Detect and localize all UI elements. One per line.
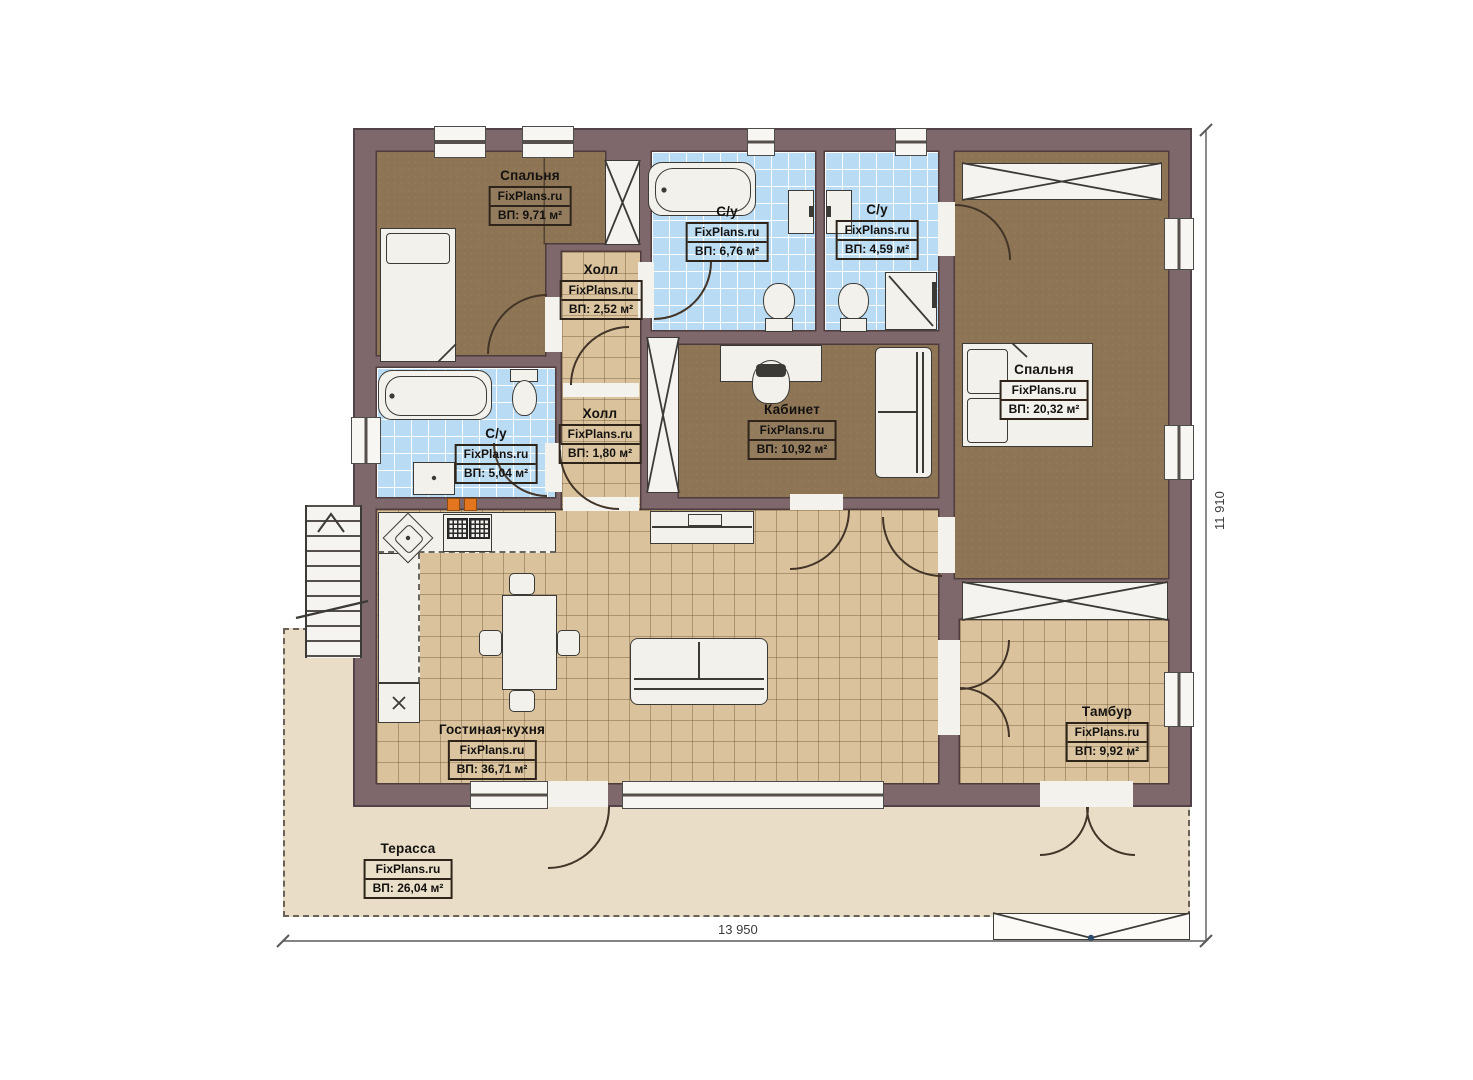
room-area: ВП: 20,32 м² xyxy=(1002,399,1087,418)
tv-console-line xyxy=(652,526,752,528)
floor-plan-canvas: Спальня FixPlans.ru ВП: 9,71 м² Холл Fix… xyxy=(0,0,1473,1080)
bathtub-inner xyxy=(385,376,487,416)
room-label-bathroom-3: С/у FixPlans.ru ВП: 5,04 м² xyxy=(455,426,538,484)
door-opening-bathroom-2 xyxy=(938,202,955,256)
room-area: ВП: 9,92 м² xyxy=(1068,741,1147,760)
toilet xyxy=(763,283,795,320)
sofa-back-line xyxy=(922,352,924,473)
brand-label: FixPlans.ru xyxy=(491,188,570,205)
porch-steps xyxy=(993,913,1190,940)
pillow xyxy=(386,233,450,264)
room-name: С/у xyxy=(686,204,769,219)
sofa-cushion-line xyxy=(878,411,916,413)
office-chair-back xyxy=(756,364,786,377)
room-area: ВП: 36,71 м² xyxy=(450,759,535,778)
window xyxy=(522,126,574,158)
wardrobe xyxy=(647,337,679,493)
stove-burner xyxy=(447,518,468,539)
room-area: ВП: 5,04 м² xyxy=(457,463,536,482)
chair xyxy=(509,573,535,595)
sofa-back-line xyxy=(916,352,918,473)
brand-label: FixPlans.ru xyxy=(561,426,640,443)
door-opening-vestibule xyxy=(938,640,960,735)
exterior-stairs xyxy=(305,505,362,658)
chair xyxy=(557,630,580,656)
window xyxy=(1164,425,1194,480)
stove-burner xyxy=(469,518,490,539)
shower-fixture xyxy=(932,282,937,308)
brand-label: FixPlans.ru xyxy=(457,446,536,463)
room-name: С/у xyxy=(455,426,538,441)
kitchen-cabinet xyxy=(378,683,420,723)
brand-label: FixPlans.ru xyxy=(688,224,767,241)
window xyxy=(434,126,486,158)
toilet-tank xyxy=(840,318,867,332)
brand-label: FixPlans.ru xyxy=(450,742,535,759)
door-opening-hall-upper xyxy=(563,383,639,397)
room-area: ВП: 26,04 м² xyxy=(366,878,451,897)
window xyxy=(622,781,884,809)
room-area: ВП: 9,71 м² xyxy=(491,205,570,224)
room-label-bedroom-2: Спальня FixPlans.ru ВП: 20,32 м² xyxy=(1000,362,1089,420)
wall-marker xyxy=(464,498,477,511)
room-label-living-kitchen: Гостиная-кухня FixPlans.ru ВП: 36,71 м² xyxy=(439,722,545,780)
shower xyxy=(885,272,937,330)
brand-label: FixPlans.ru xyxy=(366,861,451,878)
wardrobe xyxy=(605,160,640,245)
window xyxy=(351,417,381,464)
dimension-width: 13 950 xyxy=(718,922,758,937)
room-name: Терасса xyxy=(364,841,453,856)
room-area: ВП: 4,59 м² xyxy=(838,239,917,258)
dining-table xyxy=(502,595,557,690)
room-label-bedroom-1: Спальня FixPlans.ru ВП: 9,71 м² xyxy=(489,168,572,226)
wardrobe xyxy=(962,582,1168,620)
brand-label: FixPlans.ru xyxy=(838,222,917,239)
door-opening-terrace xyxy=(548,781,608,807)
chair xyxy=(479,630,502,656)
wardrobe xyxy=(962,163,1162,200)
window xyxy=(1164,672,1194,727)
kitchen-counter-left xyxy=(378,553,420,683)
brand-label: FixPlans.ru xyxy=(562,282,641,299)
room-area: ВП: 6,76 м² xyxy=(688,241,767,260)
room-label-terrace: Терасса FixPlans.ru ВП: 26,04 м² xyxy=(364,841,453,899)
room-name: Тамбур xyxy=(1066,704,1149,719)
room-name: С/у xyxy=(836,202,919,217)
room-name: Холл xyxy=(560,262,643,277)
brand-label: FixPlans.ru xyxy=(1068,724,1147,741)
washing-machine xyxy=(413,462,455,495)
window xyxy=(470,781,548,809)
brand-label: FixPlans.ru xyxy=(1002,382,1087,399)
room-label-hall-2: Холл FixPlans.ru ВП: 1,80 м² xyxy=(559,406,642,464)
door-opening-office xyxy=(790,494,843,510)
room-label-hall-1: Холл FixPlans.ru ВП: 2,52 м² xyxy=(560,262,643,320)
window xyxy=(895,128,927,156)
window xyxy=(747,128,775,156)
room-label-bathroom-2: С/у FixPlans.ru ВП: 4,59 м² xyxy=(836,202,919,260)
vanity-handle xyxy=(809,206,813,217)
sofa-cushion-divider xyxy=(698,642,700,678)
chair xyxy=(509,690,535,712)
dimension-height: 11 910 xyxy=(1212,491,1227,530)
room-label-bathroom-1: С/у FixPlans.ru ВП: 6,76 м² xyxy=(686,204,769,262)
room-area: ВП: 1,80 м² xyxy=(561,443,640,462)
room-name: Гостиная-кухня xyxy=(439,722,545,737)
room-label-office: Кабинет FixPlans.ru ВП: 10,92 м² xyxy=(748,402,837,460)
room-area: ВП: 10,92 м² xyxy=(750,439,835,458)
room-area: ВП: 2,52 м² xyxy=(562,299,641,318)
toilet xyxy=(838,283,869,320)
room-name: Кабинет xyxy=(748,402,837,417)
vanity-handle xyxy=(827,206,831,217)
room-label-vestibule: Тамбур FixPlans.ru ВП: 9,92 м² xyxy=(1066,704,1149,762)
sofa-back-line xyxy=(634,678,764,680)
wall-marker xyxy=(447,498,460,511)
brand-label: FixPlans.ru xyxy=(750,422,835,439)
toilet xyxy=(512,380,537,416)
tv xyxy=(688,514,722,526)
sofa-back-line xyxy=(634,688,764,690)
room-name: Спальня xyxy=(489,168,572,183)
toilet-tank xyxy=(765,318,793,332)
window xyxy=(1164,218,1194,270)
room-name: Холл xyxy=(559,406,642,421)
door-opening-entrance xyxy=(1040,781,1133,807)
room-name: Спальня xyxy=(1000,362,1089,377)
